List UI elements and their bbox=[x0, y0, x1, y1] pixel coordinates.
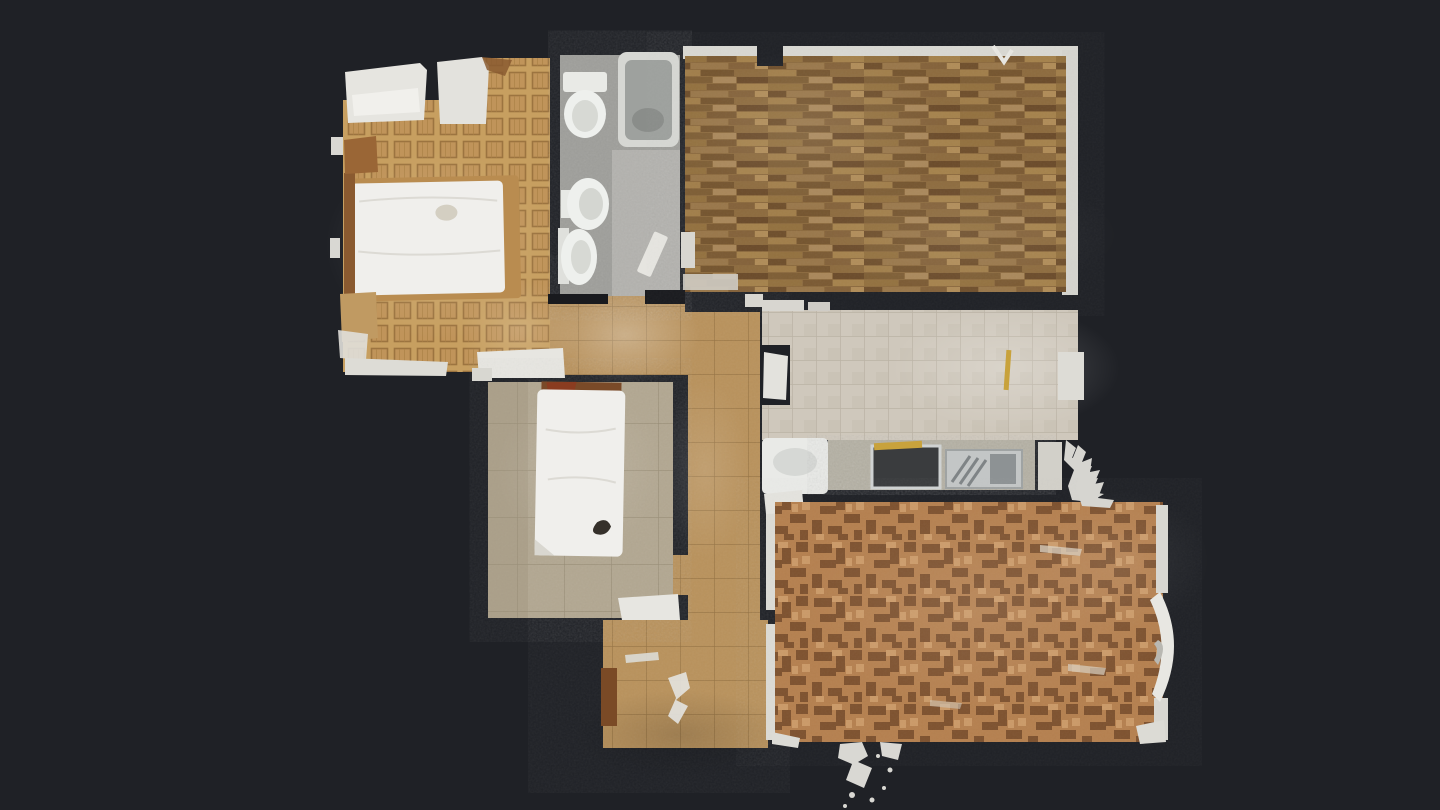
door-jamb bbox=[745, 294, 763, 307]
baseboard-left bbox=[766, 498, 775, 610]
nightstand bbox=[344, 136, 378, 174]
bidet-bowl bbox=[579, 188, 603, 220]
cabinet-top bbox=[808, 302, 830, 311]
door-threshold bbox=[683, 274, 738, 290]
baseboard-left bbox=[766, 624, 775, 740]
door-leaf bbox=[618, 594, 680, 620]
wall-stub bbox=[548, 294, 608, 304]
hallway-doorway-patch bbox=[673, 555, 689, 595]
door-jamb bbox=[472, 368, 492, 381]
living-texture bbox=[775, 502, 1163, 742]
counter-end bbox=[1038, 442, 1062, 490]
entry-door bbox=[601, 668, 617, 726]
cabinet-top bbox=[762, 300, 804, 311]
single-bed-mattress bbox=[535, 389, 626, 557]
toilet-tank bbox=[563, 72, 607, 92]
double-bed bbox=[347, 175, 522, 302]
sink-basin bbox=[571, 240, 591, 274]
washer-lid bbox=[773, 448, 817, 476]
baseboard-right bbox=[1156, 505, 1168, 593]
bedroom2-texture bbox=[685, 56, 1066, 292]
cooktop bbox=[872, 446, 940, 488]
sink-basin bbox=[990, 454, 1016, 484]
wall-stub bbox=[645, 290, 685, 304]
single-bed bbox=[535, 381, 626, 557]
room-bedroom-3[interactable] bbox=[472, 368, 680, 620]
room-bedroom-1[interactable] bbox=[325, 57, 580, 380]
door-jamb bbox=[1058, 352, 1084, 400]
scan-fragment bbox=[338, 330, 368, 360]
kitchen-light-pool bbox=[890, 306, 1120, 430]
floorplan-svg[interactable] bbox=[0, 0, 1440, 810]
room-bedroom-2[interactable] bbox=[670, 44, 1120, 307]
wardrobe bbox=[437, 57, 489, 124]
floorplan-canvas[interactable] bbox=[0, 0, 1440, 810]
headboard bbox=[344, 173, 355, 295]
door-leaf bbox=[763, 352, 788, 400]
toilet-bowl bbox=[572, 100, 598, 132]
bathtub-drain-shadow bbox=[632, 108, 664, 132]
door-jamb bbox=[681, 232, 695, 268]
room-bathroom[interactable] bbox=[548, 52, 685, 304]
